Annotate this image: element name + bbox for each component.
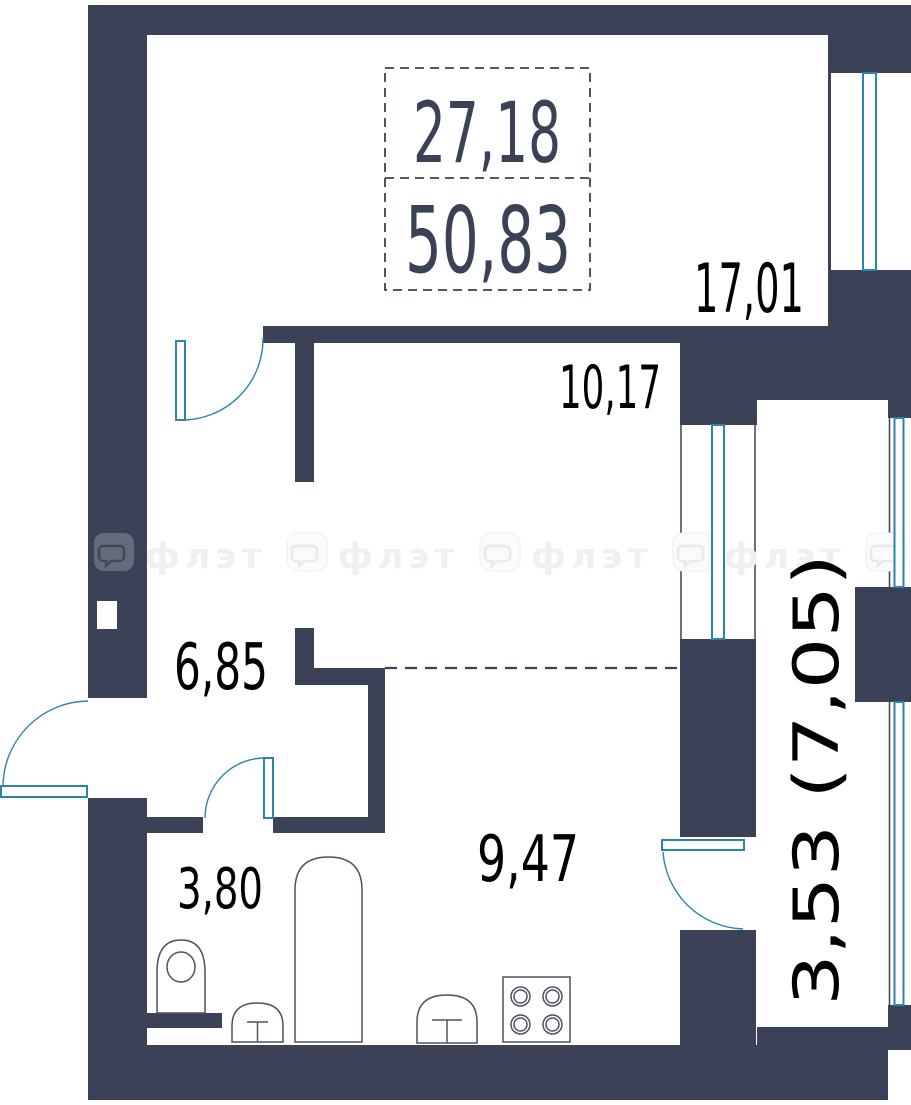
window-to-balcony xyxy=(712,425,724,639)
bathroom-area: 3,80 xyxy=(177,857,263,922)
wall-bay-jamb xyxy=(828,73,831,270)
wall-block-right xyxy=(680,326,828,400)
total-area-value: 50,83 xyxy=(405,187,571,294)
balcony-door-leaf xyxy=(662,840,744,850)
entrance-door-leaf xyxy=(1,786,87,797)
window-balcony-upper xyxy=(895,418,904,587)
wall-room-divider-top xyxy=(263,326,680,343)
stove-icon xyxy=(503,977,570,1042)
niche-bathroom xyxy=(147,1028,210,1045)
living-area-value: 27,18 xyxy=(413,84,561,182)
floor-plan: флэт флэт флэт флэт xyxy=(0,0,911,1105)
watermark-logo-icon xyxy=(94,533,134,571)
balcony-area: 3,53 (7,05) xyxy=(780,554,853,1006)
room-top-door-leaf xyxy=(176,341,185,420)
watermark-logo-icon xyxy=(673,533,713,571)
window-balcony-lower xyxy=(895,702,904,1005)
wall-kitchen-right-mid xyxy=(680,639,756,837)
wall-kitchen-right-low xyxy=(680,930,756,1045)
window-bay-top-right xyxy=(863,73,876,270)
niche-left-wall xyxy=(97,601,117,629)
wall-balcony-pillar xyxy=(855,587,911,702)
wall-hall-stub-upper xyxy=(295,343,314,482)
wall-top-right-corner xyxy=(828,5,911,73)
hallway-area: 6,85 xyxy=(174,631,268,705)
watermark-logo-icon xyxy=(480,533,520,571)
wall-balcony-corner xyxy=(888,1005,911,1050)
bathroom-sink xyxy=(232,1003,283,1042)
wall-left-upper xyxy=(88,5,147,698)
bathroom-door-arc xyxy=(205,758,265,818)
bathroom-door-leaf xyxy=(264,758,273,818)
wall-balcony-right-top xyxy=(888,400,911,418)
wall-bottom xyxy=(88,1045,757,1100)
area-summary-box: 27,18 50,83 xyxy=(385,68,590,294)
bathtub xyxy=(295,857,362,1042)
wall-bath-top-left xyxy=(147,817,203,833)
wall-kitchen-left xyxy=(368,685,385,833)
balcony-door-arc xyxy=(663,852,743,929)
toilet xyxy=(157,940,205,1013)
floor-plan-drawing: флэт флэт флэт флэт xyxy=(0,0,911,1105)
entrance-door-arc xyxy=(3,701,88,786)
room-top-area: 17,01 xyxy=(694,250,804,329)
wall-top xyxy=(88,5,828,35)
wall-hall-stub-lower xyxy=(295,628,314,668)
room-middle-area: 10,17 xyxy=(559,353,661,423)
wall-hall-jog xyxy=(295,668,385,685)
wall-bath-top-right xyxy=(273,817,385,833)
watermark-logo-icon xyxy=(287,533,327,571)
kitchen-sink xyxy=(417,995,477,1043)
wall-balcony-bottom xyxy=(757,1027,888,1100)
watermark-text: флэт xyxy=(338,537,459,577)
watermark-text: флэт xyxy=(531,537,652,577)
wall-right-mass xyxy=(828,270,911,400)
wall-above-window xyxy=(680,400,757,425)
room-top-door-arc xyxy=(181,338,263,420)
wall-nub-entry xyxy=(88,328,110,343)
kitchen-area: 9,47 xyxy=(477,823,579,897)
wall-toilet-stub xyxy=(147,1013,222,1028)
watermark-text: флэт xyxy=(145,537,266,577)
